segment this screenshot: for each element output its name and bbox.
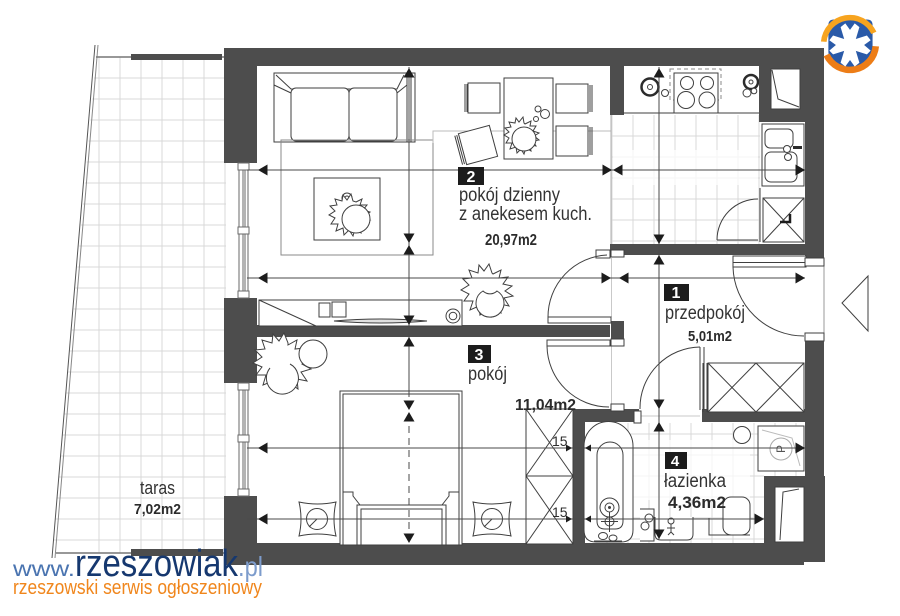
svg-text:2: 2 [467, 169, 476, 186]
svg-text:3: 3 [475, 347, 484, 364]
svg-text:4,36m2: 4,36m2 [668, 493, 726, 512]
svg-text:15: 15 [552, 433, 568, 449]
svg-text:11,04m2: 11,04m2 [515, 397, 576, 414]
svg-text:taras: taras [140, 478, 175, 498]
svg-text:7,02m2: 7,02m2 [134, 501, 181, 518]
svg-text:przedpokój: przedpokój [665, 303, 745, 324]
svg-text:4: 4 [671, 453, 680, 470]
svg-text:z anekesem kuch.: z anekesem kuch. [459, 204, 592, 225]
svg-text:1: 1 [672, 285, 681, 302]
svg-text:20,97m2: 20,97m2 [485, 232, 537, 249]
svg-text:P: P [774, 445, 788, 453]
svg-text:rzeszowski serwis ogłoszeniowy: rzeszowski serwis ogłoszeniowy [13, 577, 262, 599]
svg-text:5,01m2: 5,01m2 [688, 328, 732, 345]
svg-text:pokój dzienny: pokój dzienny [459, 185, 560, 206]
svg-text:15: 15 [552, 504, 568, 520]
svg-text:pokój: pokój [468, 364, 507, 385]
svg-text:łazienka: łazienka [664, 471, 726, 492]
